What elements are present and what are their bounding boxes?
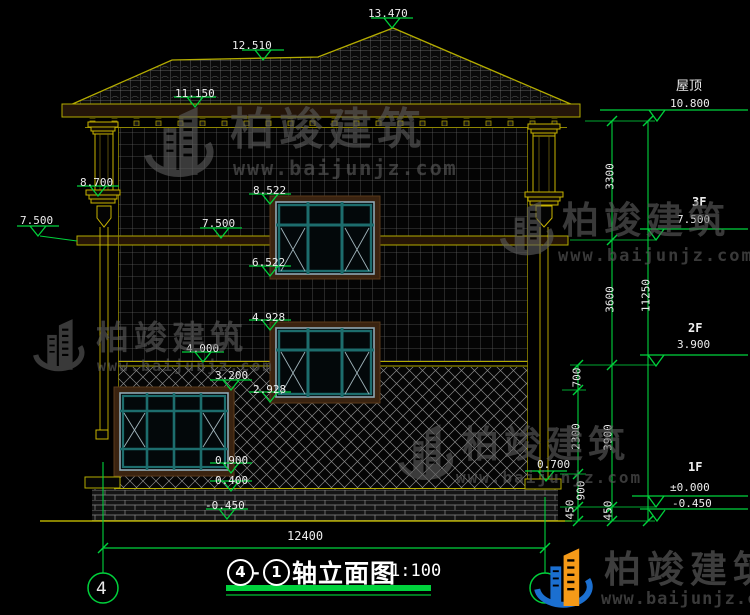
title-dash: - [253, 563, 260, 582]
dim-11250-overall: 11250 [641, 273, 652, 319]
watermark-brand: 柏竣建筑 [462, 426, 630, 463]
level-label-0900: 0.900 [215, 455, 248, 466]
ground-level-value: -0.450 [672, 498, 712, 509]
watermark-logo-icon [28, 317, 94, 375]
brand-logo-text: 柏竣建筑 [604, 551, 750, 588]
watermark: 柏竣建筑 www.baijunjz.com [496, 196, 750, 270]
watermark-brand: 柏竣建筑 [562, 202, 730, 239]
window-2f-stair [270, 322, 380, 403]
floor-2f-name: 2F [688, 322, 702, 334]
level-label-7500-outer: 7.500 [20, 215, 53, 226]
drawing-scale: 1:100 [390, 561, 441, 581]
level-label-12510: 12.510 [232, 40, 272, 51]
watermark-logo-icon [496, 198, 562, 260]
watermark: 柏竣建筑 www.baijunjz.com [138, 102, 428, 186]
axis-bubble-4-number: 4 [96, 579, 107, 599]
level-label-8522: 8.522 [253, 185, 286, 196]
brand-logo: 柏竣建筑 www.baijunjz.com [530, 545, 750, 615]
level-label-neg0450: -0.450 [205, 500, 245, 511]
floor-1f-value: ±0.000 [670, 482, 710, 493]
column-right [525, 124, 563, 205]
dim-450-inner: 450 [565, 487, 576, 533]
brand-logo-url: www.baijunjz.com [601, 591, 750, 608]
level-label-2928: 2.928 [253, 384, 286, 395]
watermark-url: www.baijunjz.com [97, 359, 274, 374]
roof-level-value: 10.800 [670, 98, 710, 109]
watermark: 柏竣建筑 www.baijunjz.com [28, 316, 258, 380]
brand-logo-icon [530, 545, 602, 613]
cad-linework [0, 0, 750, 615]
roof-level-name: 屋顶 [676, 80, 702, 93]
watermark: 柏竣建筑 www.baijunjz.com [394, 420, 644, 490]
column-left [86, 122, 120, 203]
level-label-6522: 6.522 [252, 257, 285, 268]
title-axis-circle-start: 4 [227, 559, 254, 586]
watermark-brand: 柏竣建筑 [96, 321, 248, 354]
level-label-8700: 8.700 [80, 177, 113, 188]
dim-450-story: 450 [603, 488, 614, 534]
drawing-title: 轴立面图 [292, 554, 396, 590]
level-label-7500-mid: 7.500 [202, 218, 235, 229]
floor-1f-name: 1F [688, 461, 702, 473]
level-label-11150: 11.150 [175, 88, 215, 99]
elevation-drawing-canvas: 13.470 12.510 11.150 8.700 7.500 8.522 7… [0, 0, 750, 615]
level-label-0400: 0.400 [215, 475, 248, 486]
watermark-brand: 柏竣建筑 [230, 108, 426, 152]
watermark-logo-icon [138, 104, 226, 182]
floor-2f-value: 3.900 [677, 339, 710, 350]
level-label-13470: 13.470 [368, 8, 408, 19]
dim-3600: 3600 [605, 277, 616, 323]
hip-roof [68, 28, 573, 106]
watermark-logo-icon [394, 422, 462, 484]
watermark-url: www.baijunjz.com [456, 470, 642, 486]
dim-12400-width: 12400 [287, 530, 323, 542]
dim-3300: 3300 [605, 154, 616, 200]
watermark-url: www.baijunjz.com [558, 248, 750, 265]
watermark-url: www.baijunjz.com [233, 158, 458, 178]
title-axis-circle-end: 1 [263, 559, 290, 586]
dim-700: 700 [572, 355, 583, 401]
